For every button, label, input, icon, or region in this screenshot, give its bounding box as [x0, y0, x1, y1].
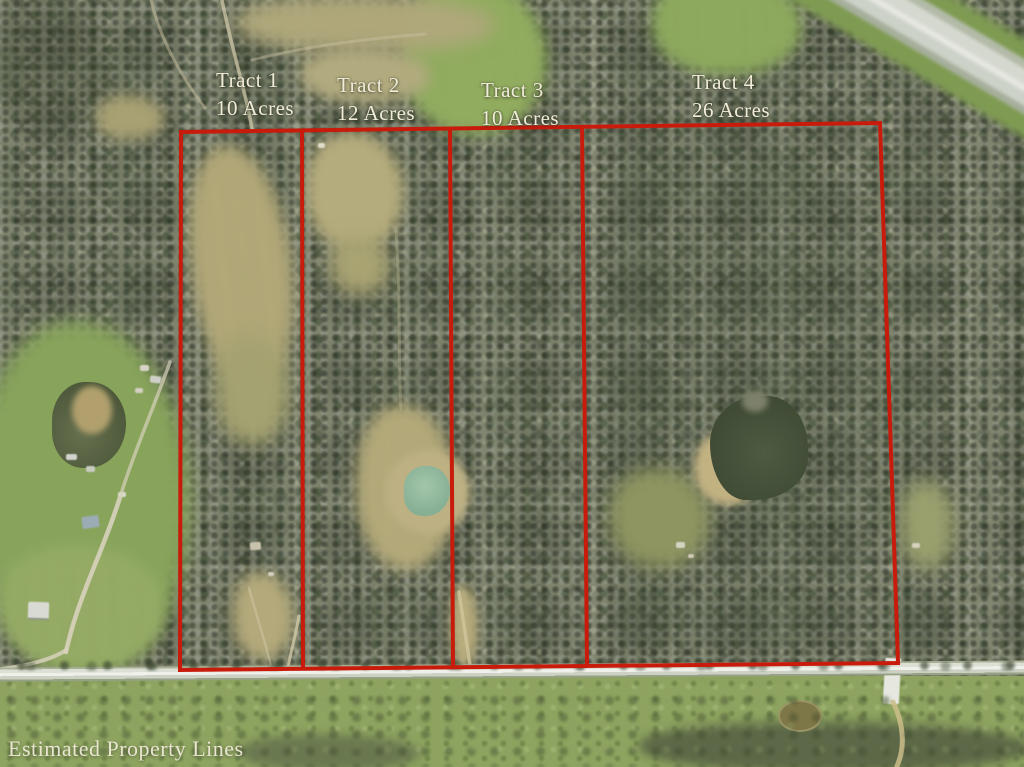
- tract-3-label: Tract 3 10 Acres: [481, 76, 559, 132]
- tract-1-label: Tract 1 10 Acres: [216, 66, 294, 122]
- tract-4-label: Tract 4 26 Acres: [692, 68, 770, 124]
- tract-divider-line: [450, 129, 453, 667]
- tract-2-label: Tract 2 12 Acres: [337, 71, 415, 127]
- tract-acreage: 10 Acres: [216, 94, 294, 122]
- outer-boundary-line: [180, 123, 898, 670]
- tract-name: Tract 3: [481, 76, 559, 104]
- tract-divider-line: [302, 131, 303, 668]
- tract-acreage: 12 Acres: [337, 99, 415, 127]
- caption-estimated-property-lines: Estimated Property Lines: [8, 736, 244, 762]
- aerial-photo: Tract 1 10 Acres Tract 2 12 Acres Tract …: [0, 0, 1024, 767]
- tract-divider-line: [582, 127, 587, 665]
- tract-name: Tract 4: [692, 68, 770, 96]
- tract-name: Tract 2: [337, 71, 415, 99]
- tract-acreage: 10 Acres: [481, 104, 559, 132]
- tract-acreage: 26 Acres: [692, 96, 770, 124]
- tract-name: Tract 1: [216, 66, 294, 94]
